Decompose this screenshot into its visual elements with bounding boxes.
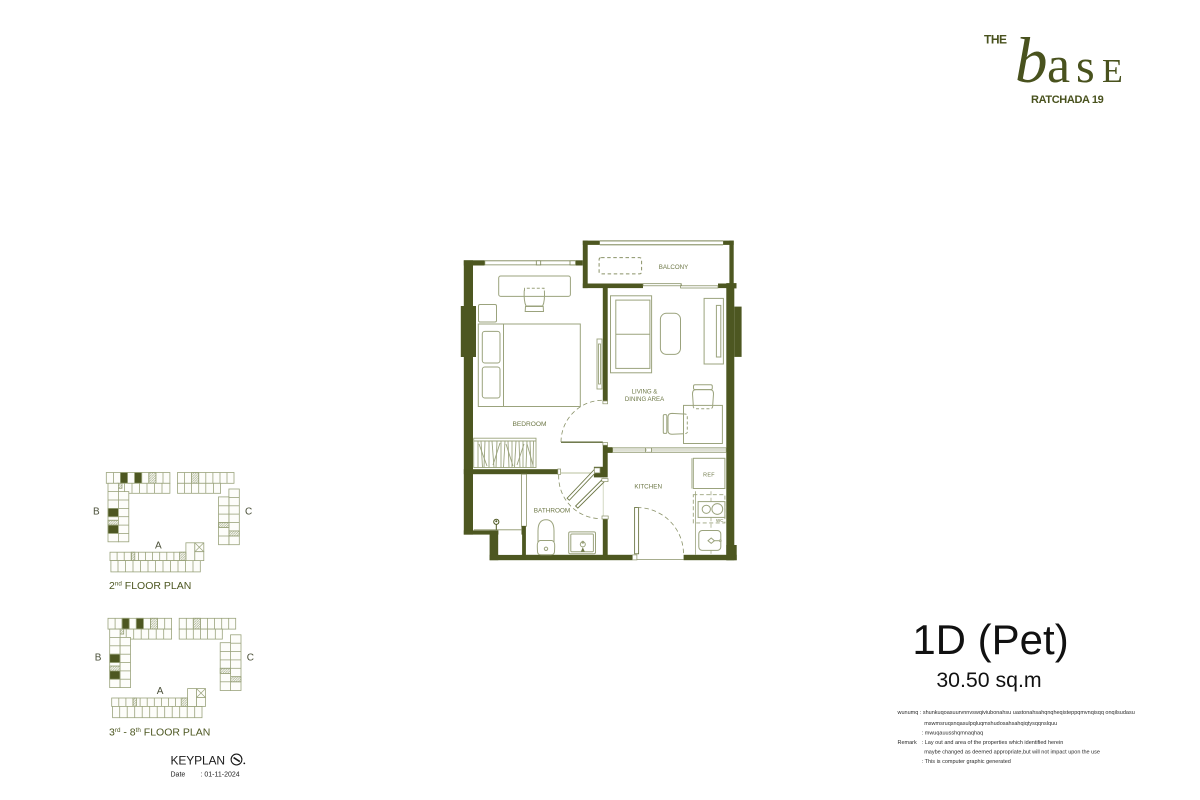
svg-text:: Lay out and area of the prop: : Lay out and area of the properties whi… xyxy=(922,740,1064,746)
svg-text:Remark: Remark xyxy=(898,740,918,746)
svg-text:: mwuqauusshqmnaqhaq: : mwuqauusshqmnaqhaq xyxy=(922,731,983,737)
svg-text:KITCHEN: KITCHEN xyxy=(634,484,662,491)
svg-text:THE: THE xyxy=(984,33,1008,47)
svg-text:1D (Pet): 1D (Pet) xyxy=(912,616,1068,663)
svg-text:maybe changed as deemed approp: maybe changed as deemed appropriate,but … xyxy=(924,750,1100,756)
svg-text:BATHROOM: BATHROOM xyxy=(534,507,570,514)
svg-text:2nd FLOOR PLAN: 2nd FLOOR PLAN xyxy=(109,580,191,592)
svg-text:A: A xyxy=(155,540,162,551)
svg-text:DINING AREA: DINING AREA xyxy=(625,396,665,403)
svg-text:BEDROOM: BEDROOM xyxy=(512,421,546,428)
svg-text:wunumq : shunkuqoasuurvnnvswqi: wunumq : shunkuqoasuurvnnvswqiviubonahsu… xyxy=(897,710,1135,716)
svg-text:: 01-11-2024: : 01-11-2024 xyxy=(201,772,240,779)
svg-text:a: a xyxy=(1047,37,1070,94)
svg-text:Date: Date xyxy=(171,772,186,779)
svg-text:E: E xyxy=(1102,53,1123,90)
svg-text:: This is computer graphic gen: : This is computer graphic generated xyxy=(922,759,1011,765)
svg-text:LIVING &: LIVING & xyxy=(632,388,658,395)
svg-text:RATCHADA 19: RATCHADA 19 xyxy=(1031,94,1105,106)
svg-text:s: s xyxy=(1076,40,1095,93)
svg-text:KEYPLAN: KEYPLAN xyxy=(171,754,226,768)
svg-text:B: B xyxy=(93,507,100,518)
svg-text:REF: REF xyxy=(703,472,715,478)
svg-text:C: C xyxy=(245,507,252,518)
svg-text:BALCONY: BALCONY xyxy=(659,264,689,271)
svg-text:WC: WC xyxy=(716,518,724,523)
svg-text:3rd - 8th FLOOR PLAN: 3rd - 8th FLOOR PLAN xyxy=(109,727,210,739)
svg-text:30.50 sq.m: 30.50 sq.m xyxy=(936,668,1041,692)
svg-text:b: b xyxy=(1015,25,1048,97)
svg-text:mswmsruqsnqasulpqluqmshudosahs: mswmsruqsnqasulpqluqmshudosahsahqiqtysqq… xyxy=(924,721,1057,727)
